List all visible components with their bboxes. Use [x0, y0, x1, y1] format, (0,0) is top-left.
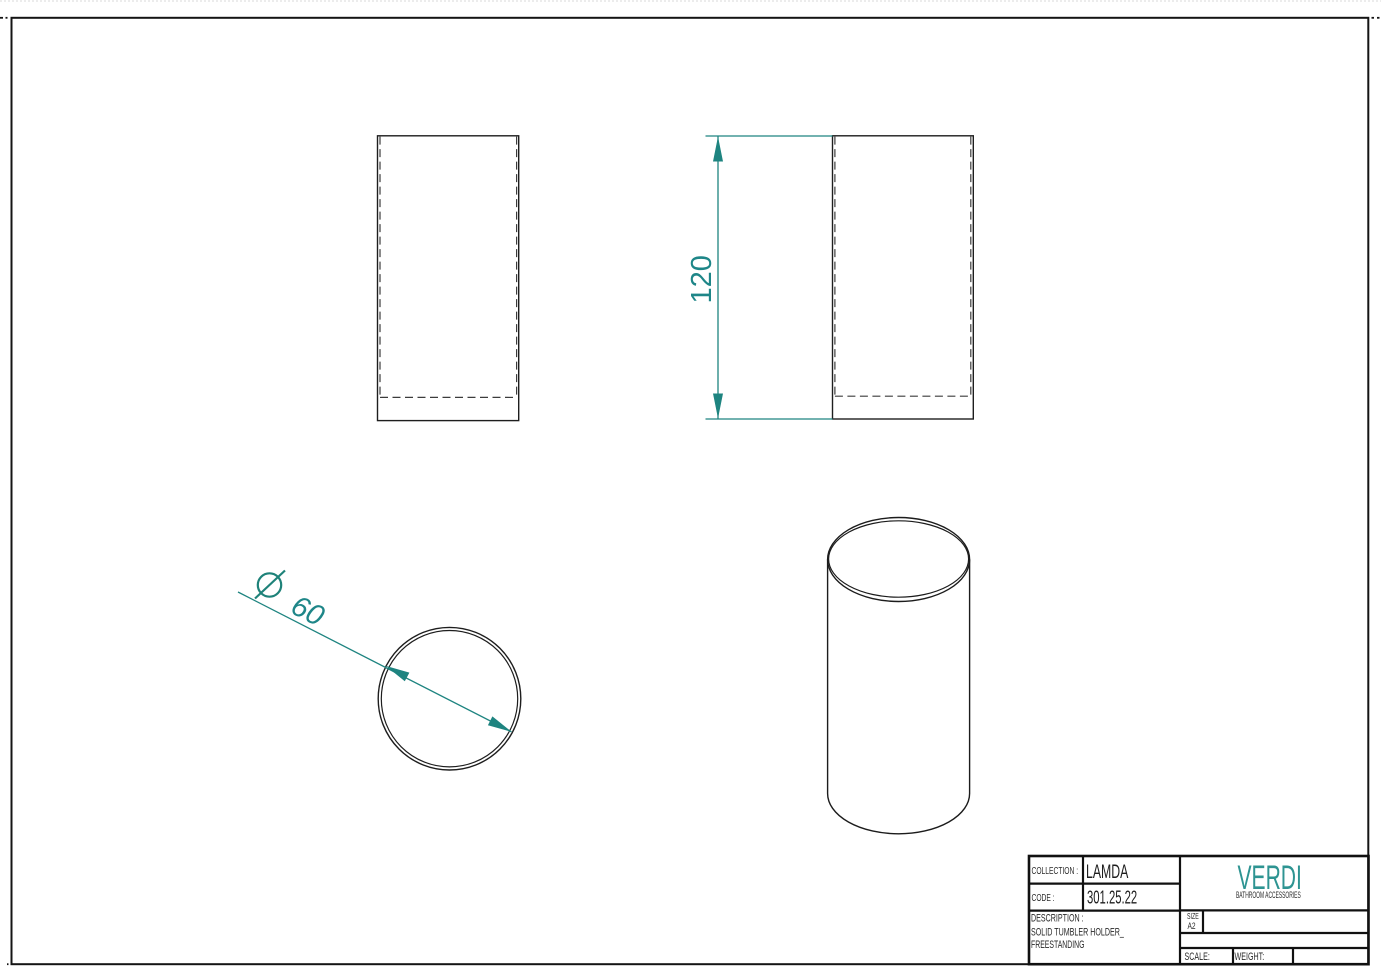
svg-text:A2: A2: [1188, 921, 1196, 931]
svg-text:DESCRIPTION :: DESCRIPTION :: [1031, 912, 1084, 924]
svg-text:CODE :: CODE :: [1032, 891, 1055, 903]
svg-text:301.25.22: 301.25.22: [1087, 888, 1137, 909]
svg-text:BATHROOM ACCESSORIES: BATHROOM ACCESSORIES: [1236, 891, 1301, 901]
svg-text:WEIGHT:: WEIGHT:: [1235, 951, 1265, 963]
svg-text:SOLID TUMBLER HOLDER_: SOLID TUMBLER HOLDER_: [1031, 926, 1125, 938]
svg-text:FREESTANDING: FREESTANDING: [1031, 938, 1085, 950]
svg-text:120: 120: [686, 255, 718, 303]
svg-text:60: 60: [286, 590, 329, 633]
svg-text:LAMDA: LAMDA: [1086, 861, 1128, 883]
svg-text:SCALE:: SCALE:: [1185, 951, 1210, 963]
svg-text:COLLECTION :: COLLECTION :: [1032, 864, 1079, 876]
